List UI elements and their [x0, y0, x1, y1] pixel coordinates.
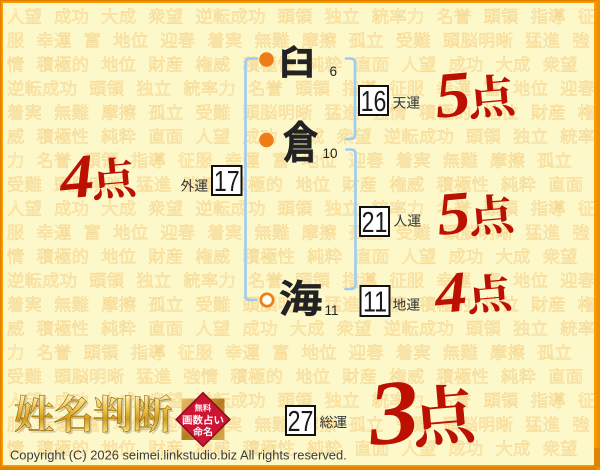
svg-text:10: 10	[323, 146, 338, 161]
svg-text:3: 3	[363, 360, 423, 465]
svg-text:17: 17	[214, 164, 240, 197]
svg-text:4: 4	[55, 142, 97, 213]
svg-text:27: 27	[288, 404, 314, 437]
svg-text:11: 11	[325, 303, 339, 318]
svg-text:16: 16	[361, 84, 387, 117]
svg-text:6: 6	[330, 64, 338, 79]
svg-text:21: 21	[362, 205, 388, 238]
svg-text:11: 11	[363, 285, 387, 318]
svg-text:5: 5	[434, 178, 473, 248]
svg-text:4: 4	[431, 260, 469, 326]
svg-text:Copyright (C) 2026 seimei.link: Copyright (C) 2026 seimei.linkstudio.biz…	[10, 448, 347, 463]
svg-text:5: 5	[432, 57, 474, 132]
